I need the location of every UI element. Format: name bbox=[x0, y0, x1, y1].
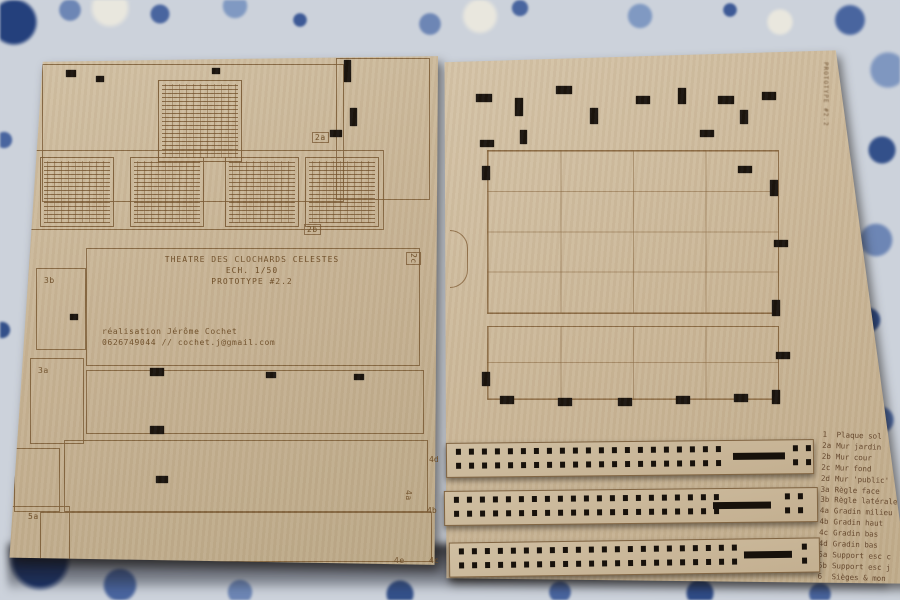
legend-item-label: Gradin milieu bbox=[834, 507, 893, 518]
cutout-slot bbox=[618, 398, 632, 406]
cutout-slot bbox=[762, 92, 776, 100]
cutout-square bbox=[675, 508, 680, 514]
contact-block: réalisation Jérôme Cochet 0626749044 // … bbox=[102, 326, 275, 348]
maze-engraving-square bbox=[40, 157, 114, 227]
part-label-4a: 4a bbox=[404, 490, 413, 501]
legend-item-id: 3b bbox=[820, 495, 834, 506]
cutout-square bbox=[719, 545, 724, 551]
cutout-square bbox=[495, 448, 500, 454]
cutout-square bbox=[623, 495, 628, 501]
cutout-square bbox=[716, 446, 721, 452]
cutout-square bbox=[610, 509, 615, 515]
cutout-square bbox=[680, 559, 685, 565]
cutout-square bbox=[612, 447, 617, 453]
cutout-slot bbox=[480, 140, 494, 147]
cutout-square bbox=[508, 448, 513, 454]
cutout-square bbox=[732, 545, 737, 551]
cutout-square bbox=[615, 560, 620, 566]
cutout-slot bbox=[150, 368, 164, 376]
cutout-square bbox=[706, 559, 711, 565]
cutout-square bbox=[597, 509, 602, 515]
cutout-slot bbox=[515, 98, 523, 116]
cutout-square bbox=[469, 463, 474, 469]
cutout-square bbox=[662, 509, 667, 515]
seat-strip-middle bbox=[444, 487, 818, 526]
seat-strip-bottom bbox=[449, 537, 820, 577]
legend-item-id: 2a bbox=[822, 441, 836, 452]
cutout-square bbox=[558, 510, 563, 516]
cutout-square bbox=[467, 511, 472, 517]
wall-panel-outline bbox=[64, 440, 428, 512]
cutout-square bbox=[688, 508, 693, 514]
legend-item-label: Règle face bbox=[834, 485, 879, 496]
legend-item-id: 4a bbox=[820, 506, 834, 517]
cutout-slot bbox=[354, 374, 364, 380]
cutout-square bbox=[706, 545, 711, 551]
cutout-square bbox=[586, 447, 591, 453]
cutout-square bbox=[480, 511, 485, 517]
cutout-square bbox=[602, 560, 607, 566]
cutout-slot bbox=[482, 372, 490, 386]
cutout-square bbox=[798, 493, 803, 499]
cutout-square bbox=[472, 548, 477, 554]
cutout-slot bbox=[713, 502, 771, 510]
cutout-square bbox=[732, 559, 737, 565]
cutout-square bbox=[806, 459, 811, 465]
cutout-square bbox=[654, 546, 659, 552]
cutout-square bbox=[638, 461, 643, 467]
cutout-slot bbox=[700, 130, 714, 137]
cutout-square bbox=[636, 509, 641, 515]
cutout-square bbox=[511, 562, 516, 568]
cutout-square bbox=[649, 509, 654, 515]
cutout-square bbox=[793, 459, 798, 465]
cutout-square bbox=[599, 461, 604, 467]
cutout-slot bbox=[556, 86, 572, 94]
cutout-square bbox=[576, 561, 581, 567]
legend-item-label: Mur jardin bbox=[836, 441, 881, 452]
cutout-slot bbox=[744, 551, 792, 559]
cutout-square bbox=[508, 462, 513, 468]
cutout-square bbox=[571, 510, 576, 516]
cutout-slot bbox=[636, 96, 650, 104]
title-line-1: THEATRE DES CLOCHARDS CELESTES bbox=[100, 254, 404, 265]
cutout-slot bbox=[776, 352, 790, 359]
cutout-slot bbox=[770, 180, 778, 196]
cutout-square bbox=[524, 561, 529, 567]
cutout-square bbox=[456, 449, 461, 455]
cutout-square bbox=[662, 495, 667, 501]
cutout-slot bbox=[70, 314, 78, 320]
cutout-slot bbox=[740, 110, 748, 124]
cutout-square bbox=[547, 462, 552, 468]
contact-line-1: réalisation Jérôme Cochet bbox=[102, 326, 275, 337]
cutout-slot bbox=[678, 88, 686, 104]
cutout-square bbox=[534, 448, 539, 454]
legend-item-id: 5a bbox=[818, 550, 832, 561]
cutout-square bbox=[651, 447, 656, 453]
part-outline bbox=[14, 448, 60, 512]
cutout-square bbox=[482, 462, 487, 468]
part-label-3b: 3b bbox=[44, 276, 55, 285]
cutout-square bbox=[498, 548, 503, 554]
cutout-square bbox=[537, 561, 542, 567]
legend-list: 1Plaque sol2aMur jardin2bMur cour2cMur f… bbox=[817, 430, 900, 587]
cutout-slot bbox=[66, 70, 76, 77]
part-label-2b: 2b bbox=[304, 224, 321, 235]
cutout-square bbox=[560, 462, 565, 468]
cutout-square bbox=[571, 496, 576, 502]
cutout-square bbox=[534, 462, 539, 468]
legend-item-label: Support esc c bbox=[832, 550, 891, 561]
cutout-square bbox=[472, 562, 477, 568]
legend-item-id: 4b bbox=[819, 517, 833, 528]
cutout-slot bbox=[266, 372, 276, 378]
legend-item-label: Support esc j bbox=[832, 561, 891, 572]
cutout-square bbox=[798, 507, 803, 513]
cutout-square bbox=[454, 497, 459, 503]
cutout-square bbox=[636, 495, 641, 501]
cutout-square bbox=[703, 460, 708, 466]
cutout-slot bbox=[212, 68, 220, 74]
cutout-square bbox=[680, 545, 685, 551]
cutout-square bbox=[586, 461, 591, 467]
cutout-slot bbox=[733, 452, 785, 460]
legend-item-label: Mur cour bbox=[836, 452, 872, 462]
strip-label-4b: 4b bbox=[427, 506, 437, 515]
legend-item-id: 3a bbox=[820, 484, 834, 495]
cutout-square bbox=[688, 494, 693, 500]
left-board: THEATRE DES CLOCHARDS CELESTES ECH. 1/50… bbox=[6, 54, 438, 570]
cutout-square bbox=[599, 447, 604, 453]
cutout-square bbox=[573, 462, 578, 468]
cutout-square bbox=[664, 461, 669, 467]
cutout-slot bbox=[350, 108, 357, 126]
cutout-square bbox=[493, 510, 498, 516]
cutout-square bbox=[495, 462, 500, 468]
cutout-square bbox=[628, 560, 633, 566]
legend-item-id: 6 bbox=[817, 571, 831, 582]
cutout-square bbox=[677, 460, 682, 466]
part-label-2a: 2a bbox=[312, 132, 329, 143]
cutout-square bbox=[667, 559, 672, 565]
title-line-2: ECH. 1/50 bbox=[100, 265, 404, 276]
cutout-square bbox=[456, 463, 461, 469]
cutout-square bbox=[485, 562, 490, 568]
cutout-square bbox=[625, 447, 630, 453]
floor-grid-engraving bbox=[487, 150, 779, 314]
seat-strip-top bbox=[446, 439, 814, 478]
cutout-square bbox=[482, 448, 487, 454]
cutout-slot bbox=[738, 166, 752, 173]
cutout-square bbox=[558, 496, 563, 502]
wall-panel-outline bbox=[40, 512, 432, 562]
cutout-square bbox=[615, 546, 620, 552]
cutout-square bbox=[521, 448, 526, 454]
cutout-square bbox=[701, 508, 706, 514]
cutout-square bbox=[677, 446, 682, 452]
cutout-square bbox=[719, 559, 724, 565]
cutout-square bbox=[589, 547, 594, 553]
legend-item-id: 2d bbox=[821, 473, 835, 484]
cutout-square bbox=[675, 494, 680, 500]
cutout-square bbox=[560, 448, 565, 454]
cutout-square bbox=[584, 509, 589, 515]
cutout-square bbox=[690, 446, 695, 452]
cutout-square bbox=[519, 496, 524, 502]
cutout-square bbox=[802, 558, 807, 564]
cutout-square bbox=[547, 448, 552, 454]
cutout-square bbox=[693, 559, 698, 565]
cutout-square bbox=[521, 462, 526, 468]
cutout-square bbox=[485, 548, 490, 554]
legend-item-label: Mur fond bbox=[835, 463, 871, 473]
cutout-slot bbox=[718, 96, 734, 104]
cutout-square bbox=[625, 461, 630, 467]
cutout-square bbox=[716, 460, 721, 466]
title-block: THEATRE DES CLOCHARDS CELESTES ECH. 1/50… bbox=[100, 254, 404, 287]
title-line-3: PROTOTYPE #2.2 bbox=[100, 276, 404, 287]
cutout-square bbox=[537, 547, 542, 553]
cutout-slot bbox=[344, 60, 351, 82]
legend-item-id: 1 bbox=[822, 430, 836, 441]
cutout-square bbox=[524, 547, 529, 553]
contact-line-2: 0626749044 // cochet.j@gmail.com bbox=[102, 337, 275, 348]
cutout-square bbox=[563, 561, 568, 567]
door-swing-engraving bbox=[450, 230, 468, 288]
cutout-slot bbox=[676, 396, 690, 404]
legend-item-label: Mur 'public' bbox=[835, 474, 889, 485]
cutout-square bbox=[806, 445, 811, 451]
legend-item-label: Plaque sol bbox=[836, 430, 881, 441]
cutout-slot bbox=[774, 240, 788, 247]
cutout-square bbox=[793, 445, 798, 451]
cutout-slot bbox=[96, 76, 104, 82]
cutout-square bbox=[584, 495, 589, 501]
cutout-square bbox=[654, 560, 659, 566]
cutout-square bbox=[602, 546, 607, 552]
cutout-square bbox=[612, 461, 617, 467]
legend-item-id: 2b bbox=[822, 452, 836, 463]
maze-engraving-square bbox=[130, 157, 204, 227]
maze-engraving-square bbox=[305, 157, 379, 227]
cutout-square bbox=[589, 561, 594, 567]
cutout-slot bbox=[520, 130, 527, 144]
cutout-slot bbox=[558, 398, 572, 406]
cutout-square bbox=[480, 497, 485, 503]
legend-item-label: Sièges & mon bbox=[831, 572, 885, 583]
maze-engraving-square bbox=[225, 157, 299, 227]
cutout-square bbox=[623, 509, 628, 515]
cutout-square bbox=[664, 447, 669, 453]
cutout-square bbox=[519, 510, 524, 516]
parts-legend: 1Plaque sol2aMur jardin2bMur cour2cMur f… bbox=[817, 430, 900, 587]
strip-label-4c: 4c bbox=[429, 556, 439, 565]
cutout-slot bbox=[500, 396, 514, 404]
cutout-square bbox=[649, 495, 654, 501]
cutout-square bbox=[545, 510, 550, 516]
legend-item-id: 4d bbox=[819, 539, 833, 550]
legend-item-label: Gradin haut bbox=[833, 517, 883, 528]
cutout-slot bbox=[330, 130, 342, 137]
legend-item-id: 2c bbox=[821, 462, 835, 473]
part-outline bbox=[8, 506, 70, 562]
cutout-square bbox=[802, 544, 807, 550]
legend-item-label: Gradin bas bbox=[833, 539, 878, 550]
cutout-square bbox=[545, 496, 550, 502]
cutout-square bbox=[506, 496, 511, 502]
cutout-square bbox=[667, 545, 672, 551]
floor-grid-engraving-lower bbox=[487, 326, 779, 400]
part-label-4e: 4e bbox=[394, 556, 405, 565]
cutout-slot bbox=[772, 300, 780, 316]
cutout-square bbox=[459, 548, 464, 554]
cutout-square bbox=[641, 546, 646, 552]
cutout-square bbox=[651, 461, 656, 467]
cutout-square bbox=[573, 448, 578, 454]
cutout-slot bbox=[156, 476, 168, 483]
cutout-square bbox=[690, 460, 695, 466]
board-edge-vertical-text: PROTOTYPE #2.2 bbox=[822, 62, 829, 127]
cutout-square bbox=[703, 446, 708, 452]
legend-item-id: 4c bbox=[819, 528, 833, 539]
cutout-square bbox=[454, 511, 459, 517]
part-label-3a: 3a bbox=[38, 366, 49, 375]
cutout-square bbox=[701, 494, 706, 500]
cutout-square bbox=[785, 507, 790, 513]
part-label-2c: 2c bbox=[406, 252, 421, 265]
legend-item-label: Gradin bas bbox=[833, 528, 878, 539]
cutout-square bbox=[693, 545, 698, 551]
cutout-square bbox=[469, 449, 474, 455]
strip-label-4d: 4d bbox=[429, 455, 439, 464]
photo-laser-cut-model-boards: THEATRE DES CLOCHARDS CELESTES ECH. 1/50… bbox=[0, 0, 900, 600]
cutout-square bbox=[563, 547, 568, 553]
cutout-square bbox=[511, 548, 516, 554]
cutout-square bbox=[714, 494, 719, 500]
cutout-slot bbox=[150, 426, 164, 434]
part-label-5a: 5a bbox=[28, 512, 39, 521]
cutout-slot bbox=[590, 108, 598, 124]
cutout-square bbox=[785, 493, 790, 499]
cutout-square bbox=[498, 562, 503, 568]
cutout-slot bbox=[772, 390, 780, 404]
cutout-square bbox=[532, 510, 537, 516]
cutout-square bbox=[493, 496, 498, 502]
cutout-slot bbox=[734, 394, 748, 402]
cutout-square bbox=[467, 497, 472, 503]
legend-item-label: Règle latérale bbox=[834, 496, 897, 507]
cutout-square bbox=[597, 495, 602, 501]
wall-panel-outline bbox=[86, 370, 424, 434]
cutout-square bbox=[576, 547, 581, 553]
cutout-square bbox=[610, 495, 615, 501]
cutout-square bbox=[506, 510, 511, 516]
cutout-square bbox=[628, 546, 633, 552]
cutout-square bbox=[550, 547, 555, 553]
cutout-square bbox=[638, 447, 643, 453]
cutout-slot bbox=[476, 94, 492, 102]
cutout-slot bbox=[482, 166, 490, 180]
cutout-square bbox=[459, 562, 464, 568]
cutout-square bbox=[550, 561, 555, 567]
cutout-square bbox=[532, 496, 537, 502]
cutout-square bbox=[641, 560, 646, 566]
